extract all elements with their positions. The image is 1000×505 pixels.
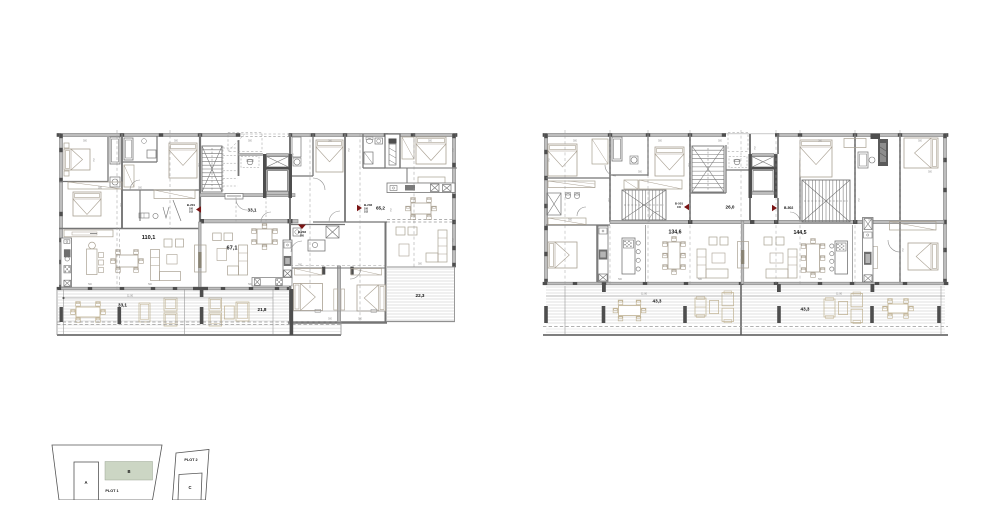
svg-text:102: 102 [189,211,194,214]
svg-text:21,8: 21,8 [258,307,267,312]
svg-text:B-202: B-202 [364,203,373,207]
svg-text:144,5: 144,5 [794,230,807,236]
svg-text:110,1: 110,1 [142,235,156,241]
svg-text:43,3: 43,3 [653,299,662,304]
svg-text:11 00: 11 00 [641,293,647,296]
svg-text:134,6: 134,6 [669,229,682,235]
svg-text:B-501: B-501 [675,202,684,206]
svg-text:C: C [188,485,191,490]
svg-text:11 00: 11 00 [127,295,133,298]
svg-text:100: 100 [677,206,682,209]
svg-text:11 00: 11 00 [836,293,842,296]
svg-text:PLOT 1: PLOT 1 [105,489,118,493]
svg-text:A: A [84,480,87,485]
svg-text:102: 102 [364,211,369,214]
svg-text:B-502: B-502 [784,206,793,210]
svg-text:67,1: 67,1 [227,246,238,252]
svg-text:65,2: 65,2 [376,206,385,211]
svg-text:B-201: B-201 [187,203,196,207]
svg-text:33,1: 33,1 [248,208,257,213]
svg-text:B-203: B-203 [298,230,307,234]
svg-text:B: B [127,469,130,474]
svg-text:PLOT 2: PLOT 2 [184,458,197,462]
svg-text:43,3: 43,3 [801,307,810,312]
svg-text:26,0: 26,0 [726,205,735,210]
svg-text:100: 100 [300,234,305,237]
svg-text:22,3: 22,3 [416,293,425,298]
svg-text:33,1: 33,1 [118,303,127,308]
